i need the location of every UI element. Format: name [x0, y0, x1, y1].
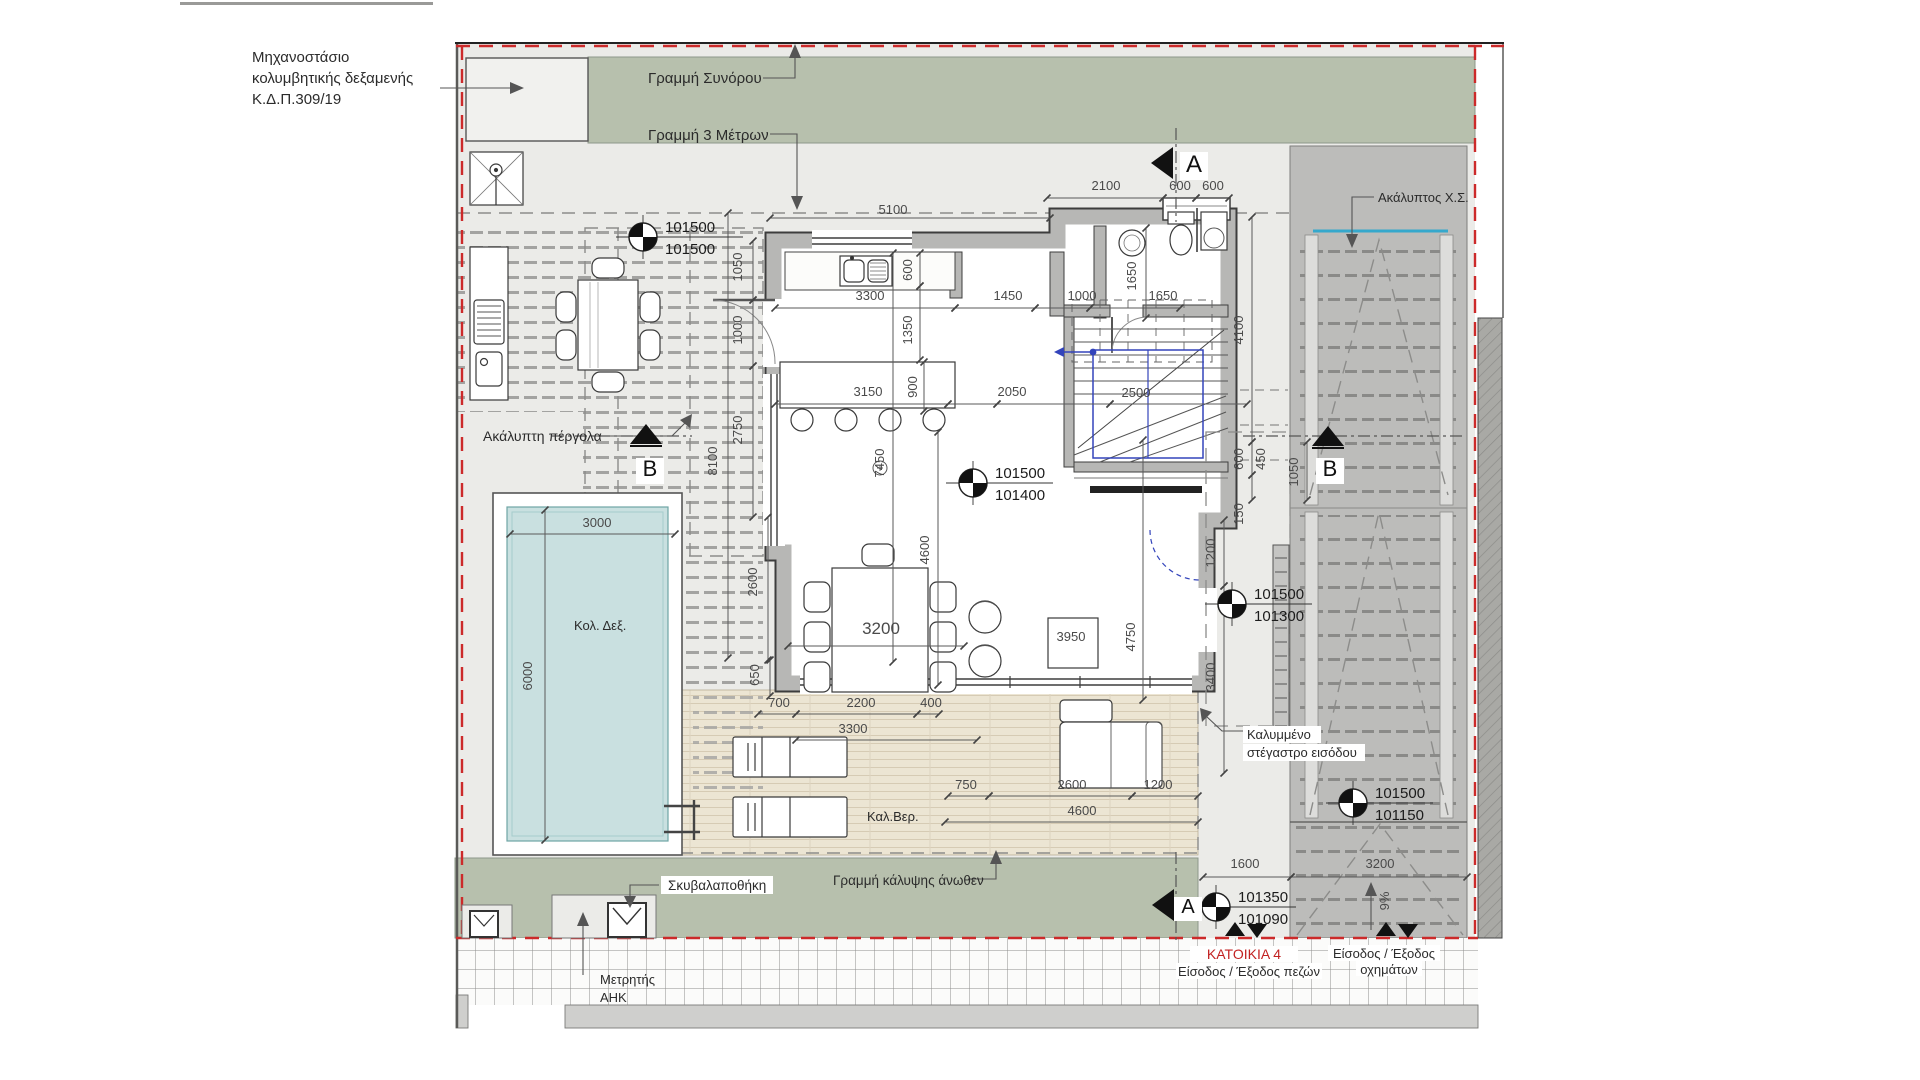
dining-chair-l3 [804, 662, 830, 692]
dimension-label: 3300 [856, 288, 885, 303]
dimension-label: 1650 [1149, 288, 1178, 303]
pool-machinery-room [466, 58, 588, 141]
dimension-label: 4600 [917, 536, 932, 565]
partition-bath-south-1 [1064, 305, 1110, 317]
dimension-label: 3400 [1203, 663, 1218, 692]
dining-chair-r1 [930, 582, 956, 612]
dimension-label: 3950 [1057, 629, 1086, 644]
dimension-label: 4750 [1123, 623, 1138, 652]
section-letter: A [1181, 896, 1195, 918]
dining-chair-r3 [930, 662, 956, 692]
dimension-label: 1600 [1231, 856, 1260, 871]
dimension-label: 6000 [520, 662, 535, 691]
bar-stool-4 [923, 409, 945, 431]
dimension-label: 1200 [1203, 539, 1218, 568]
label-three-meter-line: Γραμμή 3 Μέτρων [648, 127, 769, 144]
dining-chair-top [862, 544, 894, 566]
bar-stool-1 [791, 409, 813, 431]
label-uncovered-parking: Ακάλυπτος Χ.Σ. [1378, 190, 1469, 205]
dining-chair-l2 [804, 622, 830, 652]
partition-hall-west [1050, 252, 1064, 316]
label-coverage-line: Γραμμή κάλυψης άνωθεν [833, 873, 984, 888]
dimension-label: 8100 [705, 447, 720, 476]
dimension-label: 1200 [1144, 777, 1173, 792]
dimension-label: 1050 [1286, 458, 1301, 487]
floor-plan-page: 1015001015001015001014001015001013001015… [0, 0, 1920, 1080]
dimension-label: 3200 [862, 619, 900, 638]
neighbor-plot-line [180, 2, 433, 5]
bar-stool-2 [835, 409, 857, 431]
dining-chair-r2 [930, 622, 956, 652]
sidewalk-band [565, 1005, 1478, 1028]
level-bottom: 101400 [995, 487, 1045, 504]
level-bottom: 101090 [1238, 911, 1288, 928]
dimension-label: 9% [1377, 891, 1392, 910]
driveway-ramp-lower-texture [1300, 515, 1456, 815]
entrance-steps-strip [1273, 545, 1289, 735]
sofa-chaise [1060, 700, 1112, 722]
dimension-label: 600 [1169, 178, 1191, 193]
dimension-label: 2200 [847, 695, 876, 710]
entrance-door-opening [1195, 588, 1217, 652]
ramp-curb-left-lower [1305, 512, 1318, 818]
dimension-label: 600 [900, 259, 915, 281]
dimension-label: 3000 [583, 515, 612, 530]
label-veranda: Καλ.Βερ. [867, 809, 919, 824]
outdoor-shower-tray [470, 152, 523, 205]
label-machinery-3: Κ.Δ.Π.309/19 [252, 91, 341, 108]
dimension-label: 600 [1202, 178, 1224, 193]
dimension-label: 1650 [1124, 262, 1139, 291]
boiler-closet [1201, 212, 1227, 250]
dimension-label: 1350 [900, 316, 915, 345]
ramp-curb-right-lower [1440, 512, 1453, 818]
kitchen-faucet [850, 256, 854, 260]
dimension-label: 4100 [1231, 316, 1246, 345]
dimension-label: 400 [920, 695, 942, 710]
level-top: 101350 [1238, 889, 1288, 906]
label-vehicle-entrance-2: οχημάτων [1360, 962, 1418, 977]
dimension-label: 2750 [730, 416, 745, 445]
label-pool: Κολ. Δεξ. [574, 618, 626, 633]
dimension-label: 600 [1231, 448, 1246, 470]
level-top: 101500 [1254, 586, 1304, 603]
dimension-label: 1000 [730, 316, 745, 345]
outdoor-kitchen-counter [470, 247, 508, 400]
kitchen-window-opening [812, 230, 912, 252]
sun-lounger-2 [733, 797, 847, 837]
label-machinery-1: Μηχανοστάσιο [252, 49, 349, 66]
bar-stool-3 [879, 409, 901, 431]
kitchen-sink-basin-1 [844, 260, 864, 282]
dimension-label: 150 [1231, 503, 1246, 525]
level-top: 101500 [995, 465, 1045, 482]
toilet-bowl [1170, 225, 1192, 255]
neighbor-wall-hatch [1478, 318, 1502, 938]
dimension-label: 3300 [839, 721, 868, 736]
dimension-label: 450 [1253, 448, 1268, 470]
dimension-label: 2050 [998, 384, 1027, 399]
toilet-tank [1168, 212, 1194, 224]
dining-chair-l1 [804, 582, 830, 612]
ramp-curb-right [1440, 235, 1453, 505]
dimension-label: 1000 [1068, 288, 1097, 303]
dimension-label: 900 [905, 376, 920, 398]
armchair-2 [969, 645, 1001, 677]
label-house-4: ΚΑΤΟΙΚΙΑ 4 [1207, 946, 1281, 962]
dimension-label: 2500 [1122, 385, 1151, 400]
section-letter: B [643, 456, 658, 481]
label-vehicle-entrance-1: Είσοδος / Έξοδος [1333, 946, 1435, 961]
driveway-apron-texture [1296, 826, 1462, 932]
level-bottom: 101300 [1254, 608, 1304, 625]
level-bottom: 101500 [665, 241, 715, 258]
tv-unit [1090, 486, 1202, 493]
label-machinery-2: κολυμβητικής δεξαμενής [252, 70, 413, 87]
dimension-label: 5100 [879, 202, 908, 217]
west-door-opening [763, 299, 785, 367]
dimension-label: 1450 [994, 288, 1023, 303]
label-pergola: Ακάλυπτη πέργολα [483, 428, 602, 444]
label-pedestrian-entrance: Είσοδος / Έξοδος πεζών [1178, 964, 1320, 979]
bath-sink [1119, 230, 1145, 256]
dimension-label: 7450 [872, 449, 887, 478]
dimension-label: 4600 [1068, 803, 1097, 818]
label-boundary-line: Γραμμή Συνόρου [648, 70, 762, 87]
label-entrance-canopy-2: στέγαστρο εισόδου [1247, 745, 1357, 760]
dimension-label: 2600 [745, 568, 760, 597]
stair-direction-start [1090, 349, 1097, 356]
partition-stair-south [1074, 462, 1228, 472]
dimension-label: 2100 [1092, 178, 1121, 193]
dimension-label: 2600 [1058, 777, 1087, 792]
dimension-label: 650 [747, 664, 762, 686]
floor-plan-drawing: 1015001015001015001014001015001013001015… [0, 0, 1920, 1080]
armchair-1 [969, 601, 1001, 633]
dimension-label: 3200 [1366, 856, 1395, 871]
section-letter: A [1186, 151, 1202, 178]
dimension-label: 3150 [854, 384, 883, 399]
dimension-label: 750 [955, 777, 977, 792]
level-top: 101500 [1375, 785, 1425, 802]
label-meter-1: Μετρητής [600, 972, 655, 987]
dimension-label: 700 [768, 695, 790, 710]
dimension-label: 1050 [730, 253, 745, 282]
level-bottom: 101150 [1375, 807, 1424, 824]
label-garbage-store: Σκυβαλαποθήκη [668, 878, 766, 893]
level-top: 101500 [665, 219, 715, 236]
sun-lounger-1 [733, 737, 847, 777]
section-letter: B [1323, 456, 1338, 481]
label-entrance-canopy-1: Καλυμμένο [1247, 727, 1311, 742]
label-meter-2: ΑΗΚ [600, 990, 627, 1005]
